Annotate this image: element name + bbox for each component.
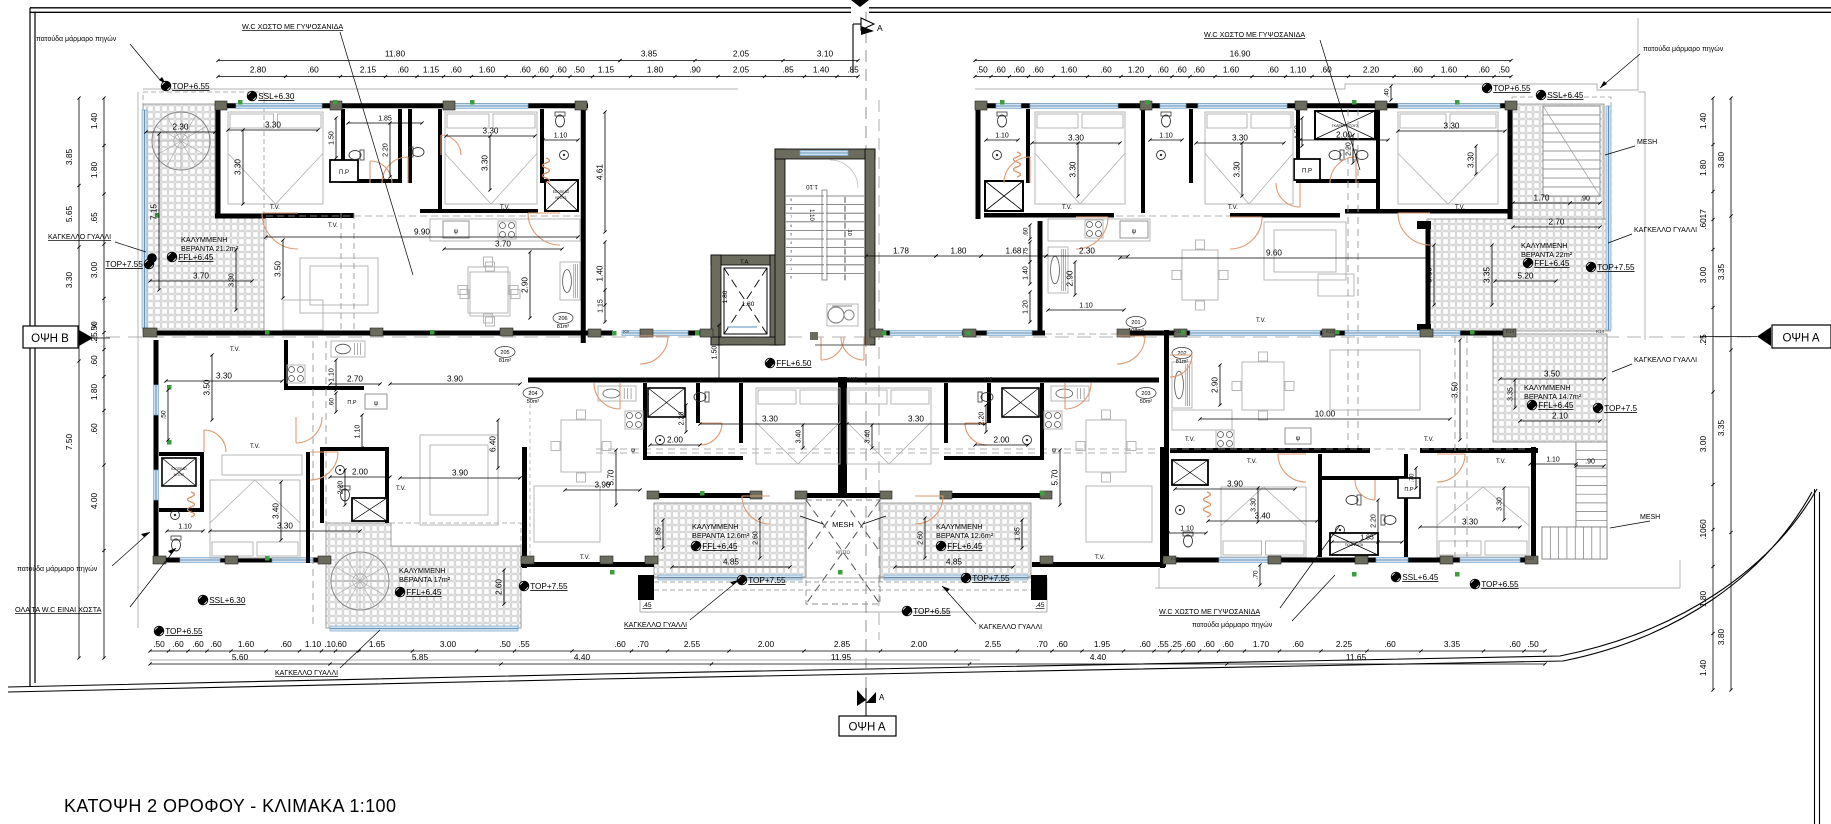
svg-text:2.25: 2.25: [1336, 639, 1353, 649]
svg-text:1.10: 1.10: [305, 639, 322, 649]
svg-text:Π.Ρ: Π.Ρ: [347, 400, 357, 406]
svg-text:2.00: 2.00: [994, 436, 1010, 445]
svg-text:TOP+7.55: TOP+7.55: [105, 260, 143, 269]
svg-text:1.40: 1.40: [1698, 660, 1708, 677]
svg-text:16.90: 16.90: [1230, 49, 1251, 59]
svg-text:5.85: 5.85: [412, 652, 429, 662]
svg-text:1.20: 1.20: [1023, 300, 1030, 314]
svg-text:K16: K16: [984, 376, 993, 381]
svg-text:.60: .60: [555, 65, 567, 75]
svg-text:3.40: 3.40: [796, 430, 803, 444]
svg-text:1.65: 1.65: [369, 639, 386, 649]
svg-text:TOP+6.55: TOP+6.55: [1493, 84, 1531, 93]
svg-text:ΓΚΑΡΝΤ.ΝΤΟΥΣ: ΓΚΑΡΝΤ.ΝΤΟΥΣ: [1332, 124, 1359, 128]
svg-text:K9: K9: [623, 329, 629, 334]
svg-text:ΕΣΟΠΕΔΟ: ΕΣΟΠΕΔΟ: [171, 467, 187, 471]
svg-text:ΒΕΡΑΝΤΑ 21.2m²: ΒΕΡΑΝΤΑ 21.2m²: [181, 244, 239, 253]
svg-text:3.40: 3.40: [272, 503, 281, 519]
svg-text:.60: .60: [397, 65, 409, 75]
svg-text:2.85: 2.85: [834, 639, 851, 649]
svg-text:1.80: 1.80: [742, 301, 755, 308]
svg-text:1.80: 1.80: [722, 290, 729, 303]
svg-text:T.V.: T.V.: [230, 347, 240, 353]
svg-text:T.V.: T.V.: [270, 205, 280, 211]
svg-text:1.70: 1.70: [1534, 194, 1550, 203]
svg-text:2.20: 2.20: [1371, 514, 1378, 528]
svg-text:1.68: 1.68: [1006, 247, 1022, 256]
svg-text:3.30: 3.30: [64, 272, 74, 289]
svg-text:T.V.: T.V.: [500, 205, 510, 211]
svg-text:.70: .70: [1036, 639, 1048, 649]
svg-text:.60: .60: [1411, 65, 1423, 75]
svg-text:.50: .50: [1498, 65, 1510, 75]
svg-text:FFL+6.45: FFL+6.45: [1534, 259, 1570, 268]
svg-text:1.50: 1.50: [329, 131, 336, 145]
svg-text:ΚΑΛΥΜΜΕΝΗ: ΚΑΛΥΜΜΕΝΗ: [936, 522, 983, 531]
svg-text:.60: .60: [1292, 639, 1304, 649]
svg-text:2.00: 2.00: [911, 639, 928, 649]
svg-text:3.30: 3.30: [229, 273, 236, 287]
svg-text:1.15: 1.15: [598, 299, 605, 313]
svg-text:SSL+6.30: SSL+6.30: [209, 596, 246, 605]
svg-text:7.50: 7.50: [64, 434, 74, 451]
svg-text:.50: .50: [153, 639, 165, 649]
svg-text:.60: .60: [1157, 65, 1169, 75]
svg-text:.10: .10: [1698, 528, 1708, 540]
svg-text:2.30: 2.30: [1079, 247, 1095, 256]
svg-text:K12: K12: [1326, 329, 1335, 334]
svg-text:3.90: 3.90: [447, 375, 463, 384]
svg-text:A: A: [877, 23, 883, 33]
svg-text:3.80: 3.80: [1716, 629, 1726, 646]
svg-text:3.30: 3.30: [1233, 161, 1242, 177]
svg-text:FFL+6.45: FFL+6.45: [178, 253, 214, 262]
svg-text:3.90: 3.90: [1227, 480, 1243, 489]
svg-text:.60: .60: [210, 639, 222, 649]
svg-text:1.40: 1.40: [813, 65, 830, 75]
svg-text:81m²: 81m²: [557, 324, 570, 330]
svg-text:1.85: 1.85: [378, 116, 392, 123]
svg-text:K13: K13: [1506, 329, 1515, 334]
svg-text:T.V.: T.V.: [1256, 318, 1266, 324]
svg-text:.65: .65: [89, 212, 99, 224]
svg-text:ΚΑΛΥΜΜΕΝΗ: ΚΑΛΥΜΜΕΝΗ: [1524, 383, 1571, 392]
svg-text:4.40: 4.40: [574, 652, 591, 662]
svg-text:ΚΑΓΚΕΛΛΟ ΓΥΑΛΛΙ: ΚΑΓΚΕΛΛΟ ΓΥΑΛΛΙ: [275, 670, 338, 677]
svg-text:.60: .60: [1384, 639, 1396, 649]
svg-text:.60: .60: [1478, 65, 1490, 75]
svg-text:1.10: 1.10: [178, 524, 192, 531]
svg-text:2.20: 2.20: [383, 143, 390, 157]
svg-text:.55: .55: [1157, 639, 1169, 649]
svg-text:2.60: 2.60: [495, 579, 504, 595]
svg-text:K11: K11: [1174, 329, 1182, 334]
svg-text:3.00: 3.00: [440, 639, 457, 649]
svg-text:.60: .60: [329, 398, 336, 407]
svg-text:2.20: 2.20: [979, 412, 986, 426]
svg-text:50m²: 50m²: [527, 399, 540, 405]
svg-text:.25: .25: [1170, 639, 1182, 649]
svg-text:11.80: 11.80: [385, 49, 406, 59]
svg-text:3.70: 3.70: [495, 240, 511, 249]
svg-text:T.V.: T.V.: [1185, 437, 1195, 443]
svg-text:2.90: 2.90: [1211, 377, 1220, 393]
svg-text:2.80: 2.80: [250, 65, 267, 75]
svg-text:.60: .60: [450, 65, 462, 75]
svg-text:3.30: 3.30: [1251, 498, 1258, 512]
svg-text:TOP+7.55: TOP+7.55: [1597, 263, 1635, 272]
svg-text:1.60: 1.60: [238, 639, 255, 649]
svg-text:1.40: 1.40: [1023, 266, 1030, 280]
svg-text:2.60: 2.60: [753, 531, 760, 545]
svg-text:3.30: 3.30: [1069, 161, 1078, 177]
svg-text:.90: .90: [1580, 196, 1590, 203]
svg-text:.85: .85: [782, 65, 794, 75]
svg-text:3.80: 3.80: [1716, 152, 1726, 169]
svg-text:3.30: 3.30: [234, 159, 243, 175]
svg-text:1.80: 1.80: [89, 384, 99, 401]
svg-text:.60: .60: [1509, 639, 1521, 649]
svg-text:3.85: 3.85: [641, 49, 658, 59]
svg-text:3.50: 3.50: [203, 379, 212, 395]
svg-text:2.90: 2.90: [521, 277, 530, 293]
svg-text:ΒΕΡΑΝΤΑ 17m²: ΒΕΡΑΝΤΑ 17m²: [399, 575, 451, 584]
svg-text:3.30: 3.30: [762, 415, 778, 424]
svg-text:2.00: 2.00: [352, 468, 368, 477]
svg-text:TOP+7.5: TOP+7.5: [1604, 404, 1637, 413]
svg-text:1.10: 1.10: [806, 183, 818, 189]
svg-text:.60: .60: [1056, 639, 1068, 649]
svg-text:.50: .50: [89, 321, 99, 333]
svg-text:ΝΤΟΥΣ: ΝΤΟΥΣ: [174, 473, 185, 477]
svg-text:3.30: 3.30: [265, 121, 281, 130]
svg-text:MESH: MESH: [832, 520, 854, 529]
svg-text:ΟΛΑ ΤΑ W.C ΕΙΝΑΙ ΧΩΣΤΑ: ΟΛΑ ΤΑ W.C ΕΙΝΑΙ ΧΩΣΤΑ: [15, 605, 102, 614]
svg-text:TOP+6.55: TOP+6.55: [165, 627, 203, 636]
svg-text:.60: .60: [335, 639, 347, 649]
svg-text:ΚΑΛΥΜΜΕΝΗ: ΚΑΛΥΜΜΕΝΗ: [399, 566, 446, 575]
svg-text:.70: .70: [1409, 473, 1416, 482]
svg-text:2.10: 2.10: [1552, 412, 1568, 421]
svg-text:1.60: 1.60: [1223, 65, 1240, 75]
svg-text:81m²: 81m²: [499, 358, 512, 364]
svg-text:2.70: 2.70: [1549, 218, 1565, 227]
svg-text:W.C ΧΩΣΤΟ ΜΕ ΓΥΨΟΣΑΝΙΔΑ: W.C ΧΩΣΤΟ ΜΕ ΓΥΨΟΣΑΝΙΔΑ: [242, 22, 343, 31]
svg-text:3.00: 3.00: [89, 262, 99, 279]
svg-text:6.40: 6.40: [489, 436, 498, 452]
svg-text:5.20: 5.20: [1518, 272, 1534, 281]
svg-text:4.40: 4.40: [1090, 652, 1107, 662]
svg-text:5.70: 5.70: [1051, 469, 1060, 485]
svg-text:T.V.: T.V.: [1455, 205, 1465, 211]
svg-text:ΒΕΡΑΝΤΑ 22m²: ΒΕΡΑΝΤΑ 22m²: [1521, 250, 1573, 259]
svg-text:TOP+6.55: TOP+6.55: [1481, 580, 1519, 589]
svg-text:4.00: 4.00: [89, 493, 99, 510]
svg-text:9.60: 9.60: [1266, 249, 1282, 258]
svg-text:3.70: 3.70: [193, 272, 209, 281]
svg-text:3.10: 3.10: [817, 49, 834, 59]
svg-text:11.65: 11.65: [1346, 652, 1367, 662]
svg-text:1.10: 1.10: [329, 368, 336, 382]
svg-text:3.30: 3.30: [216, 372, 232, 381]
svg-text:7.15: 7.15: [150, 204, 159, 220]
svg-text:3.40: 3.40: [1255, 512, 1271, 521]
svg-text:2.15: 2.15: [360, 65, 377, 75]
svg-text:1.10: 1.10: [1290, 65, 1307, 75]
svg-text:ΒΕΡΑΝΤΑ 14.7m²: ΒΕΡΑΝΤΑ 14.7m²: [1524, 392, 1582, 401]
svg-text:3.30: 3.30: [1462, 518, 1478, 527]
svg-text:.60: .60: [1184, 639, 1196, 649]
svg-text:ΕΣΟΠΕΔΟ: ΕΣΟΠΕΔΟ: [553, 190, 570, 194]
svg-text:1.60: 1.60: [479, 65, 496, 75]
svg-text:.60: .60: [1193, 65, 1205, 75]
svg-text:3.30: 3.30: [483, 127, 499, 136]
svg-text:.60: .60: [1100, 65, 1112, 75]
svg-text:3.35: 3.35: [1425, 267, 1434, 283]
svg-text:T.V.: T.V.: [1228, 205, 1238, 211]
svg-text:.60: .60: [1139, 639, 1151, 649]
svg-text:1.70: 1.70: [1253, 639, 1270, 649]
svg-text:T.V.: T.V.: [1095, 555, 1105, 561]
svg-text:1.80: 1.80: [1698, 160, 1708, 177]
svg-text:.60: .60: [280, 639, 292, 649]
svg-text:1.10: 1.10: [554, 133, 568, 140]
svg-text:1.60: 1.60: [1441, 65, 1458, 75]
svg-text:5.65: 5.65: [64, 206, 74, 223]
svg-text:K24: K24: [1526, 556, 1535, 561]
svg-text:ΚΑΛΥΜΜΕΝΗ: ΚΑΛΥΜΜΕΝΗ: [1521, 241, 1568, 250]
svg-text:T.V.: T.V.: [1424, 437, 1434, 443]
svg-text:ψ: ψ: [1132, 228, 1137, 235]
svg-text:3.30: 3.30: [277, 522, 293, 531]
svg-text:4.85: 4.85: [723, 558, 739, 567]
svg-text:1.10: 1.10: [355, 425, 362, 439]
svg-text:1.10: 1.10: [808, 209, 814, 221]
svg-text:.60: .60: [1175, 65, 1187, 75]
svg-text:1.40: 1.40: [1698, 113, 1708, 130]
svg-text:Π.Ρ: Π.Ρ: [1302, 169, 1312, 175]
svg-text:1.15: 1.15: [598, 65, 615, 75]
svg-text:2.20: 2.20: [1346, 142, 1353, 156]
svg-text:3.35: 3.35: [1716, 420, 1726, 437]
svg-text:ΚΑΛΥΜΜΕΝΗ: ΚΑΛΥΜΜΕΝΗ: [181, 235, 228, 244]
svg-text:1.80: 1.80: [89, 162, 99, 179]
svg-text:1.40: 1.40: [596, 265, 605, 281]
svg-text:TOP+6.55: TOP+6.55: [172, 82, 210, 91]
svg-text:1.80: 1.80: [951, 247, 967, 256]
svg-text:2.00: 2.00: [667, 436, 683, 445]
svg-text:.60: .60: [1023, 227, 1030, 236]
svg-text:1.95: 1.95: [1094, 639, 1111, 649]
svg-text:ΒΕΡΑΝΤΑ 12.6m²: ΒΕΡΑΝΤΑ 12.6m²: [692, 531, 750, 540]
svg-text:.60: .60: [614, 639, 626, 649]
svg-text:.25: .25: [89, 332, 99, 344]
svg-text:.60: .60: [994, 65, 1006, 75]
svg-text:2.60: 2.60: [918, 531, 925, 545]
svg-text:3.85: 3.85: [64, 149, 74, 166]
svg-text:.60: .60: [537, 65, 549, 75]
svg-text:.45: .45: [1035, 602, 1044, 609]
svg-text:ψ: ψ: [1052, 448, 1056, 454]
svg-text:T.V.: T.V.: [1496, 459, 1506, 465]
svg-text:.60: .60: [1698, 218, 1708, 230]
svg-text:A: A: [879, 693, 885, 702]
svg-text:2.20: 2.20: [1363, 65, 1380, 75]
svg-text:TOP+7.55: TOP+7.55: [530, 582, 568, 591]
svg-text:.60: .60: [1203, 639, 1215, 649]
svg-text:K22: K22: [1171, 556, 1180, 561]
svg-text:3.00: 3.00: [1698, 267, 1708, 284]
svg-text:1.10: 1.10: [995, 133, 1009, 140]
svg-text:11.95: 11.95: [831, 652, 852, 662]
svg-text:T.V.: T.V.: [250, 444, 260, 450]
svg-text:.90: .90: [1585, 459, 1595, 466]
svg-text:3.00: 3.00: [1698, 436, 1708, 453]
svg-text:ΚΑΛΥΜΜΕΝΗ: ΚΑΛΥΜΜΕΝΗ: [692, 522, 739, 531]
svg-text:3.35: 3.35: [1508, 387, 1515, 401]
svg-text:ΒΕΡΑΝΤΑ 12.6m²: ΒΕΡΑΝΤΑ 12.6m²: [936, 531, 994, 540]
svg-text:2.20: 2.20: [338, 481, 345, 495]
svg-text:W.C ΧΩΣΤΟ ΜΕ ΓΥΨΟΣΑΝΙΔΑ: W.C ΧΩΣΤΟ ΜΕ ΓΥΨΟΣΑΝΙΔΑ: [1204, 30, 1305, 39]
svg-text:ΠΟΔΗΛΑΤΑ: ΠΟΔΗΛΑΤΑ: [1345, 543, 1364, 547]
svg-text:ψ: ψ: [454, 228, 459, 235]
svg-text:πατούδα μάρμαρο πηγών: πατούδα μάρμαρο πηγών: [1192, 621, 1273, 629]
svg-text:ΟΨΗ Α: ΟΨΗ Α: [1782, 333, 1819, 345]
svg-text:SSL+6.45: SSL+6.45: [1547, 91, 1584, 100]
svg-text:W.C ΧΩΣΤΟ ΜΕ ΓΥΨΟΣΑΝΙΔΑ: W.C ΧΩΣΤΟ ΜΕ ΓΥΨΟΣΑΝΙΔΑ: [1159, 607, 1260, 616]
svg-text:1.15: 1.15: [423, 65, 440, 75]
svg-text:1.85: 1.85: [1360, 535, 1374, 542]
svg-text:ΚΑΤΟΨΗ 2 ΟΡΟΦΟΥ - ΚΛΙΜΑΚΑ 1:10: ΚΑΤΟΨΗ 2 ΟΡΟΦΟΥ - ΚΛΙΜΑΚΑ 1:100: [64, 796, 396, 816]
svg-text:.45: .45: [642, 602, 651, 609]
svg-text:81m²: 81m²: [1176, 359, 1189, 365]
svg-text:.40: .40: [1384, 88, 1391, 97]
svg-text:.70: .70: [637, 639, 649, 649]
svg-text:1.50: 1.50: [712, 346, 719, 360]
svg-text:9.90: 9.90: [414, 228, 430, 237]
svg-text:Π.Ρ: Π.Ρ: [1404, 487, 1414, 493]
svg-text:FFL+6.45: FFL+6.45: [1538, 401, 1574, 410]
svg-text:1.80: 1.80: [647, 65, 664, 75]
svg-text:ΝΤΟΥΣ: ΝΤΟΥΣ: [555, 196, 566, 200]
svg-text:3.35: 3.35: [1444, 639, 1461, 649]
svg-text:3.30: 3.30: [1232, 134, 1248, 143]
svg-text:Τ.Α.: Τ.Α.: [740, 260, 750, 266]
svg-text:.60: .60: [1032, 65, 1044, 75]
svg-text:.50: .50: [1527, 639, 1539, 649]
svg-text:2.70: 2.70: [347, 375, 363, 384]
svg-text:FFL+6.50: FFL+6.50: [776, 359, 812, 368]
svg-text:.60: .60: [192, 639, 204, 649]
svg-text:1.50: 1.50: [1295, 125, 1302, 139]
svg-text:.50: .50: [161, 410, 168, 419]
svg-text:5.60: 5.60: [232, 652, 249, 662]
svg-text:1.10: 1.10: [1079, 303, 1093, 310]
svg-text:πατούδα μάρμαρο πηγών: πατούδα μάρμαρο πηγών: [1643, 45, 1724, 53]
svg-text:1.40: 1.40: [89, 113, 99, 130]
svg-text:1.80: 1.80: [1698, 591, 1708, 608]
svg-text:10.00: 10.00: [1315, 410, 1336, 419]
svg-text:.50: .50: [573, 65, 585, 75]
svg-text:.60: .60: [172, 639, 184, 649]
svg-text:1.85: 1.85: [1015, 527, 1022, 541]
svg-text:203: 203: [1141, 391, 1150, 397]
svg-text:.75: .75: [1023, 247, 1030, 256]
svg-text:T.V.: T.V.: [1247, 459, 1257, 465]
svg-text:2.30: 2.30: [173, 123, 189, 132]
svg-text:4.61: 4.61: [596, 164, 605, 180]
svg-text:TOP+7.55: TOP+7.55: [748, 576, 786, 585]
svg-text:.60: .60: [307, 65, 319, 75]
svg-text:ΚΑΓΚΕΛΛΟ ΓΥΑΛΛΙ: ΚΑΓΚΕΛΛΟ ΓΥΑΛΛΙ: [624, 622, 687, 629]
svg-text:MESH: MESH: [1637, 139, 1657, 146]
svg-text:ΚΑΓΚΕΛΛΟ ΓΥΑΛΛΙ: ΚΑΓΚΕΛΛΟ ΓΥΑΛΛΙ: [48, 234, 111, 241]
svg-text:3.50: 3.50: [1451, 382, 1460, 398]
svg-text:1.85: 1.85: [656, 527, 663, 541]
svg-text:TOP+6.55: TOP+6.55: [913, 607, 951, 616]
svg-text:2.20: 2.20: [679, 412, 686, 426]
svg-text:.60: .60: [519, 65, 531, 75]
svg-text:3.30: 3.30: [1444, 122, 1460, 131]
svg-text:3.35: 3.35: [1716, 264, 1726, 281]
svg-text:3.90: 3.90: [452, 469, 468, 478]
svg-text:205: 205: [500, 350, 509, 356]
svg-text:3.30: 3.30: [1467, 152, 1476, 168]
svg-text:TOP+7.55: TOP+7.55: [972, 574, 1010, 583]
svg-text:.25: .25: [1698, 334, 1708, 346]
svg-text:κήπο: κήπο: [836, 549, 850, 556]
svg-text:2.00: 2.00: [758, 639, 775, 649]
svg-text:3.30: 3.30: [481, 155, 490, 171]
svg-text:T.V.: T.V.: [1062, 205, 1072, 211]
svg-text:FFL+6.45: FFL+6.45: [406, 588, 442, 597]
svg-text:.60: .60: [89, 355, 99, 367]
svg-text:201: 201: [1131, 320, 1140, 326]
svg-text:.55: .55: [518, 639, 530, 649]
svg-text:2.90: 2.90: [1066, 270, 1075, 286]
svg-text:ψ: ψ: [374, 401, 378, 407]
svg-text:ΟΨΗ Β: ΟΨΗ Β: [31, 333, 69, 345]
svg-text:2.05: 2.05: [733, 49, 750, 59]
svg-text:2.55: 2.55: [684, 639, 701, 649]
svg-text:3.30: 3.30: [908, 415, 924, 424]
svg-text:ψ: ψ: [631, 448, 635, 454]
svg-text:K15: K15: [849, 376, 858, 381]
svg-text:3.50: 3.50: [1544, 370, 1560, 379]
svg-text:2.55: 2.55: [985, 639, 1002, 649]
svg-text:204: 204: [528, 391, 537, 397]
svg-text:3.50: 3.50: [274, 261, 283, 277]
svg-text:3.90: 3.90: [595, 481, 611, 490]
svg-text:K14: K14: [1596, 329, 1605, 334]
svg-text:MESH: MESH: [1640, 514, 1660, 521]
svg-text:.70: .70: [1253, 570, 1260, 579]
svg-text:3.40: 3.40: [865, 430, 872, 444]
svg-text:SSL+6.45: SSL+6.45: [1402, 573, 1439, 582]
svg-text:T.V.: T.V.: [580, 555, 590, 561]
svg-text:T.V.: T.V.: [328, 223, 338, 229]
svg-text:Π.Ρ: Π.Ρ: [339, 170, 349, 176]
svg-text:3.30: 3.30: [1068, 134, 1084, 143]
svg-text:ΚΑΓΚΕΛΛΟ ΓΥΑΛΛΙ: ΚΑΓΚΕΛΛΟ ΓΥΑΛΛΙ: [1634, 357, 1697, 364]
svg-text:1.20: 1.20: [1128, 65, 1145, 75]
svg-text:SSL+6.30: SSL+6.30: [258, 92, 295, 101]
svg-text:.60: .60: [1267, 65, 1279, 75]
svg-text:2.05: 2.05: [733, 65, 750, 75]
svg-text:.50: .50: [499, 639, 511, 649]
svg-text:4.85: 4.85: [946, 558, 962, 567]
svg-text:1.10: 1.10: [1159, 133, 1173, 140]
